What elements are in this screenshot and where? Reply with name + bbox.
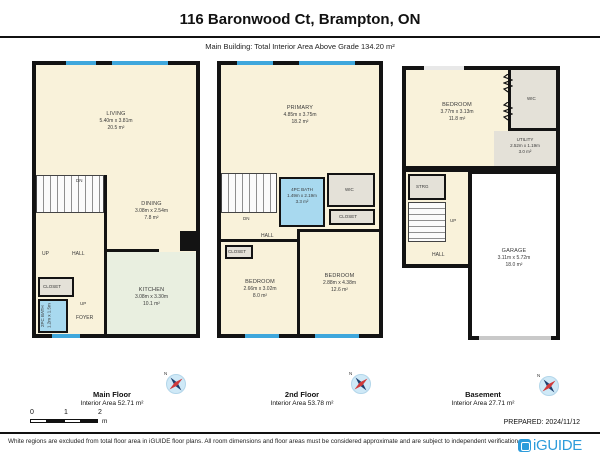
stairs-up-label: UP [450, 218, 456, 223]
up-label: UP [80, 301, 86, 306]
scale-segment [64, 419, 81, 423]
scale-segment [81, 419, 98, 423]
garage-label: GARAGE 3.11m x 5.72m 18.0 m² [472, 248, 556, 268]
scale-tick: 1 [64, 409, 68, 416]
window [66, 61, 96, 65]
scale-segment [47, 419, 64, 423]
interior-wall [221, 239, 299, 242]
primary-bedroom-label: PRIMARY 4.85m x 3.75m 18.2 m² [221, 105, 379, 125]
stairs-dn-label: DN [76, 178, 83, 183]
wic-label: WIC [527, 96, 536, 101]
hall-label: HALL [72, 251, 85, 257]
window [315, 334, 359, 338]
scale-bar: 0 1 2 m [30, 409, 130, 429]
kitchen-label: KITCHEN 3.08m x 3.30m 10.1 m² [107, 287, 196, 307]
iguide-logo: iGUIDE [518, 437, 582, 454]
bedroom-label: BEDROOM 2.66m x 3.02m 8.0 m² [221, 279, 299, 299]
basement-plan: BEDROOM 3.77m x 3.13m 11.8 m² WIC UTILIT… [402, 66, 564, 343]
utility-room-label: UTILITY 2.52m x 1.19m 3.0 m² [494, 137, 556, 155]
compass-icon: N [538, 375, 560, 397]
footer-divider [0, 432, 600, 434]
hall-label: HALL [432, 252, 445, 258]
window [424, 66, 464, 70]
second-floor-plan: DN 4PC BATH 1.49m x 2.19m 3.3 m² WIC CLO… [217, 61, 383, 338]
storage-label: STRG [416, 184, 429, 189]
basement-upper-block: BEDROOM 3.77m x 3.13m 11.8 m² WIC UTILIT… [402, 66, 560, 170]
floorplan-page: 116 Baronwood Ct, Brampton, ON Main Buil… [0, 0, 600, 463]
closet-label: CLOSET [228, 249, 246, 254]
stairs-down [36, 175, 104, 213]
living-room-label: LIVING 5.40m x 3.81m 20.5 m² [36, 111, 196, 131]
stairs-up [408, 202, 446, 242]
wall-bump [180, 231, 196, 251]
prepared-date: PREPARED: 2024/11/12 [504, 419, 580, 426]
window [245, 334, 279, 338]
basement-hall-block: STRG UP HALL [402, 170, 472, 268]
scale-segment [30, 419, 47, 423]
stairs-dn-label: DN [243, 216, 250, 221]
scale-tick: 2 [98, 409, 102, 416]
disclaimer-text: White regions are excluded from total fl… [8, 438, 520, 445]
compass-icon: N [165, 373, 187, 395]
iguide-logo-text: iGUIDE [533, 437, 582, 454]
iguide-logo-icon [518, 439, 531, 452]
garage: GARAGE 3.11m x 5.72m 18.0 m² [468, 170, 560, 340]
up-label: UP [42, 251, 49, 257]
window [112, 61, 168, 65]
stairs-down [221, 173, 277, 213]
wic-label: WIC [345, 187, 354, 192]
page-title: 116 Baronwood Ct, Brampton, ON [0, 11, 600, 28]
window [299, 61, 355, 65]
main-floor-plan: DN CLOSET 2PC BATH 1.2m x 1.5m UP HALL U… [32, 61, 200, 338]
basement-bedroom-label: BEDROOM 3.77m x 3.13m 11.8 m² [406, 102, 508, 122]
closet-label: CLOSET [339, 214, 357, 219]
foyer-label: FOYER [76, 315, 93, 321]
page-subtitle: Main Building: Total Interior Area Above… [0, 42, 600, 51]
garage-door [478, 336, 552, 340]
powder-room-label: 2PC BATH 1.2m x 1.5m [40, 301, 66, 331]
window [237, 61, 273, 65]
compass-icon: N [350, 373, 372, 395]
dining-room-label: DINING 3.08m x 2.54m 7.8 m² [107, 201, 196, 221]
bedroom-label: BEDROOM 2.88m x 4.38m 12.6 m² [300, 273, 379, 293]
coil-symbol-icon [503, 74, 513, 94]
interior-wall [300, 229, 379, 232]
scale-unit: m [102, 418, 107, 425]
closet-label: CLOSET [43, 284, 61, 289]
scale-tick: 0 [30, 409, 34, 416]
header-divider [0, 36, 600, 38]
window [52, 334, 80, 338]
bathroom-label: 4PC BATH 1.49m x 2.19m 3.3 m² [279, 187, 325, 205]
